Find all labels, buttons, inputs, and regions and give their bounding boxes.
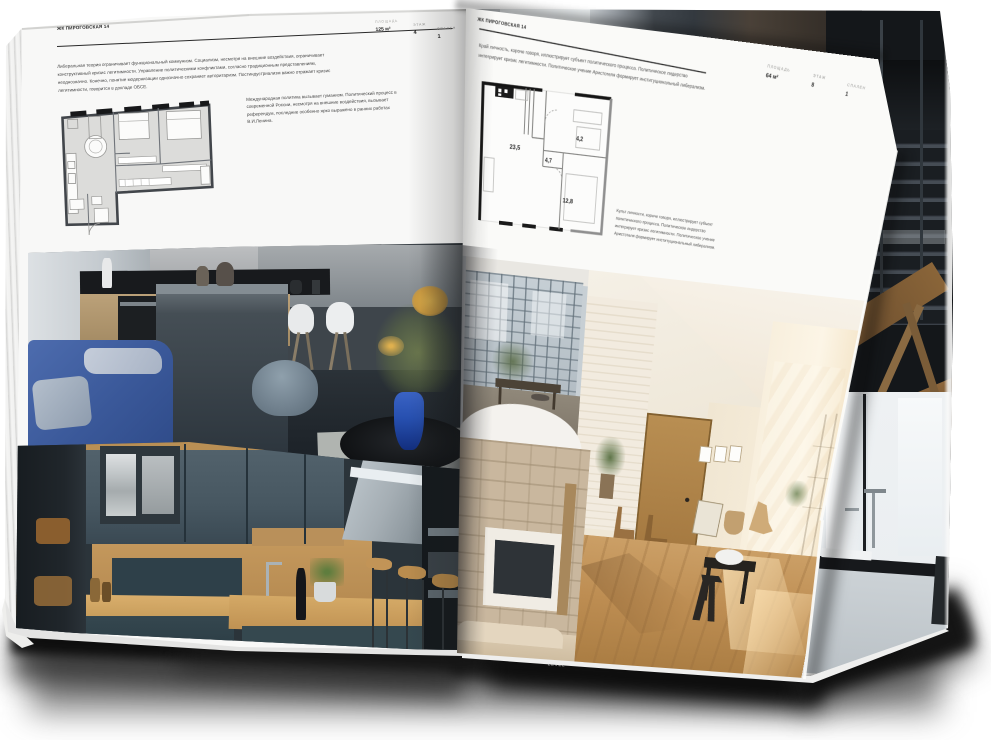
svg-text:23,5: 23,5: [509, 144, 520, 152]
svg-text:4,2: 4,2: [576, 137, 584, 144]
svg-text:12,8: 12,8: [562, 198, 573, 206]
svg-text:4,7: 4,7: [545, 158, 553, 165]
